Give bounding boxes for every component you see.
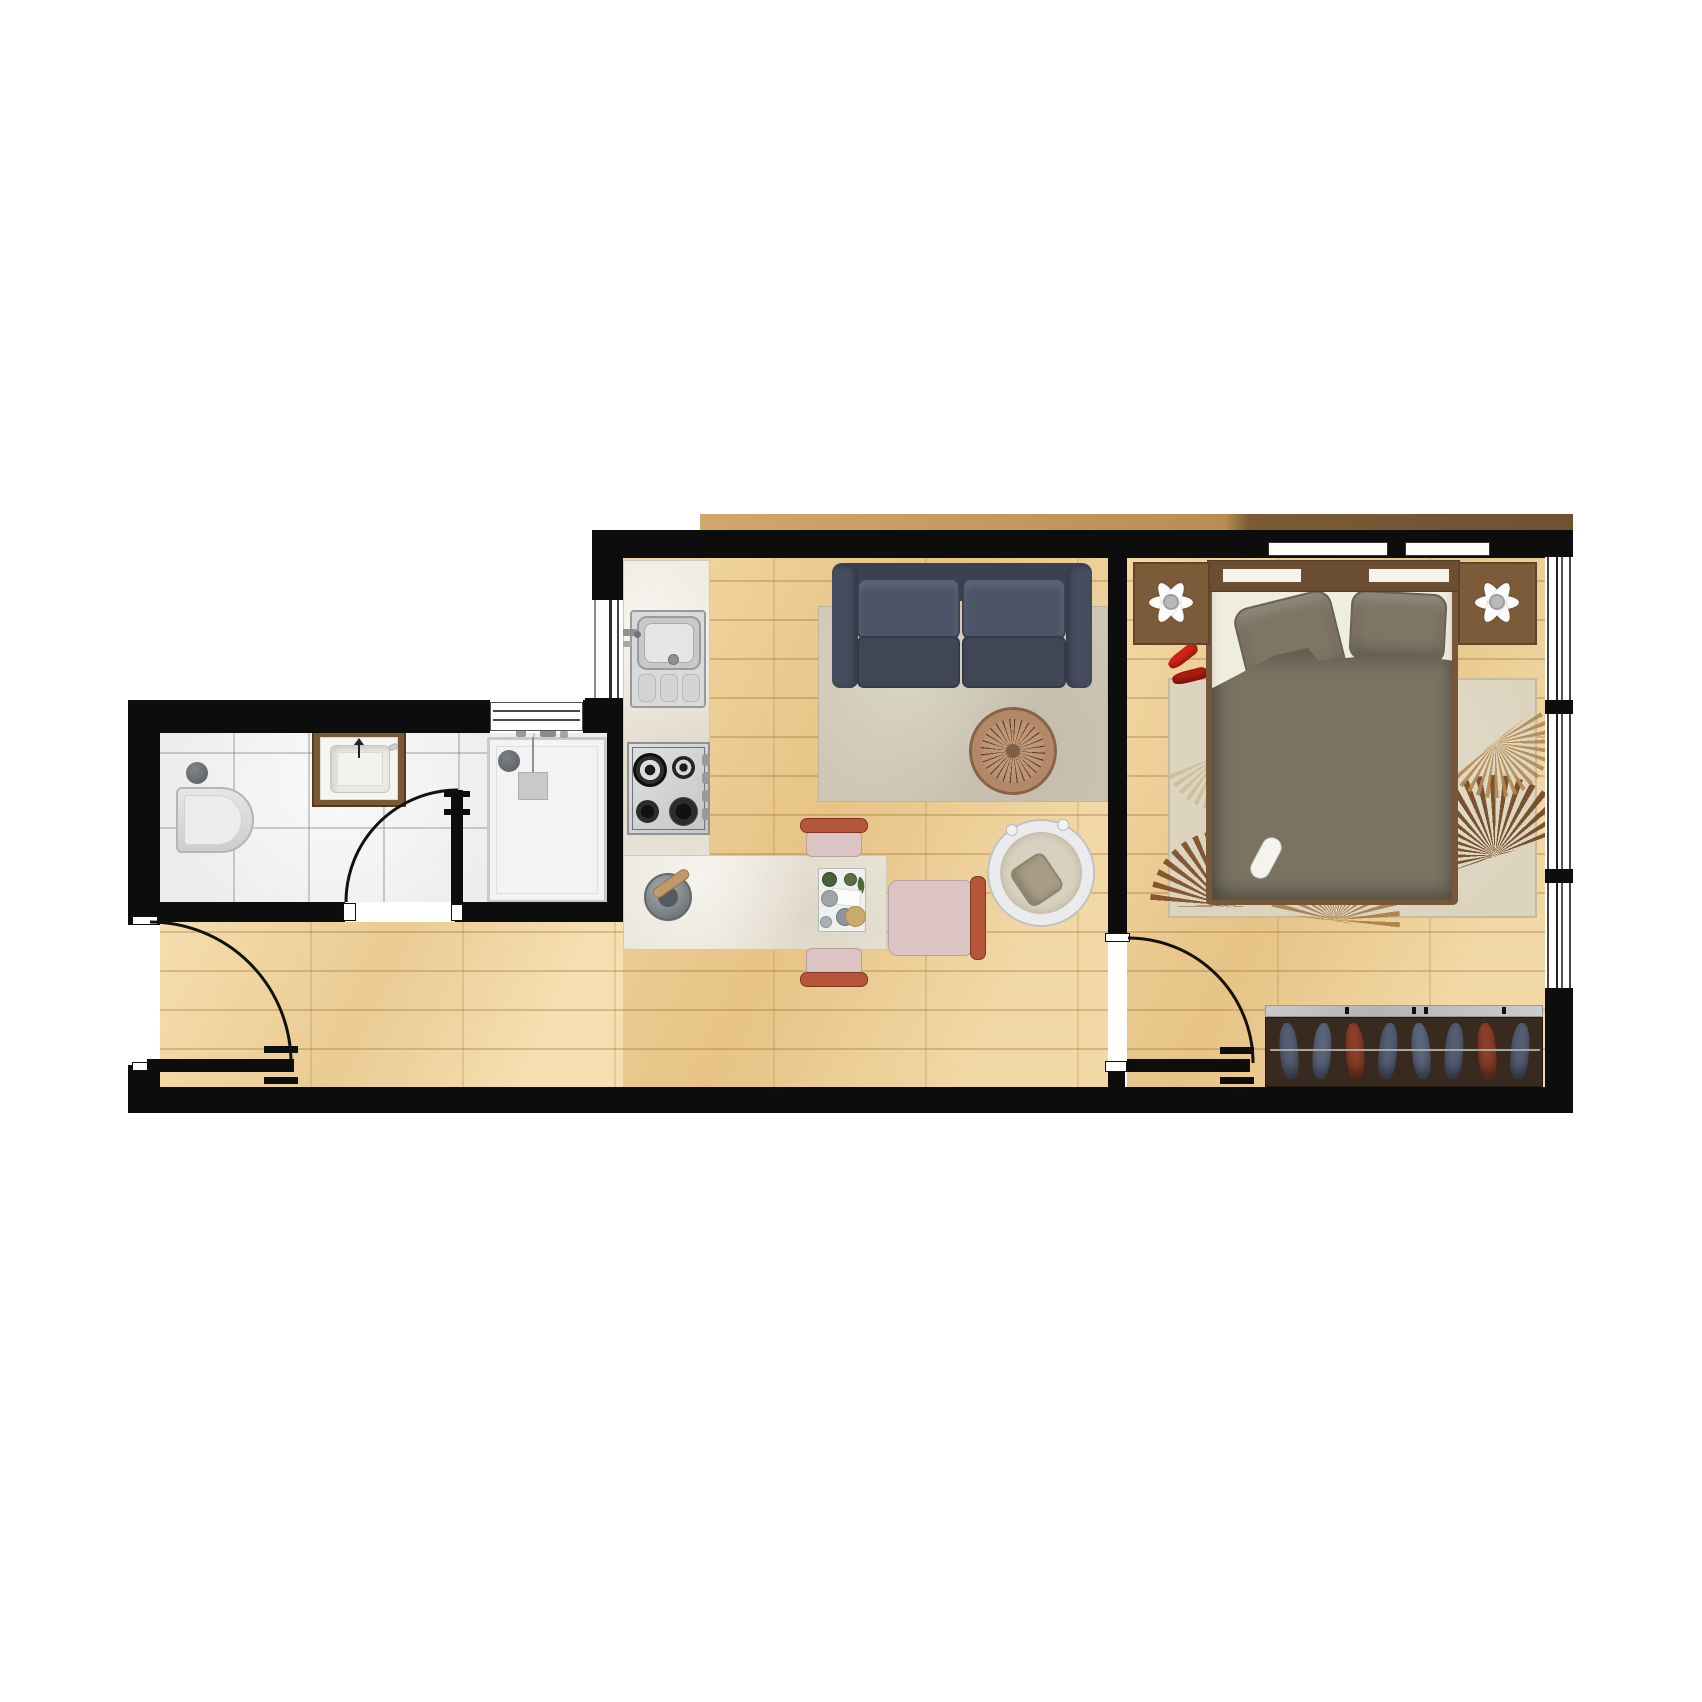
bedroom-door-arc <box>1128 938 1253 1063</box>
entry-door-arc <box>150 922 291 1063</box>
floor-plan <box>0 0 1702 1702</box>
door-swing-arcs <box>0 0 1702 1702</box>
bathroom-door-arc <box>346 790 458 902</box>
